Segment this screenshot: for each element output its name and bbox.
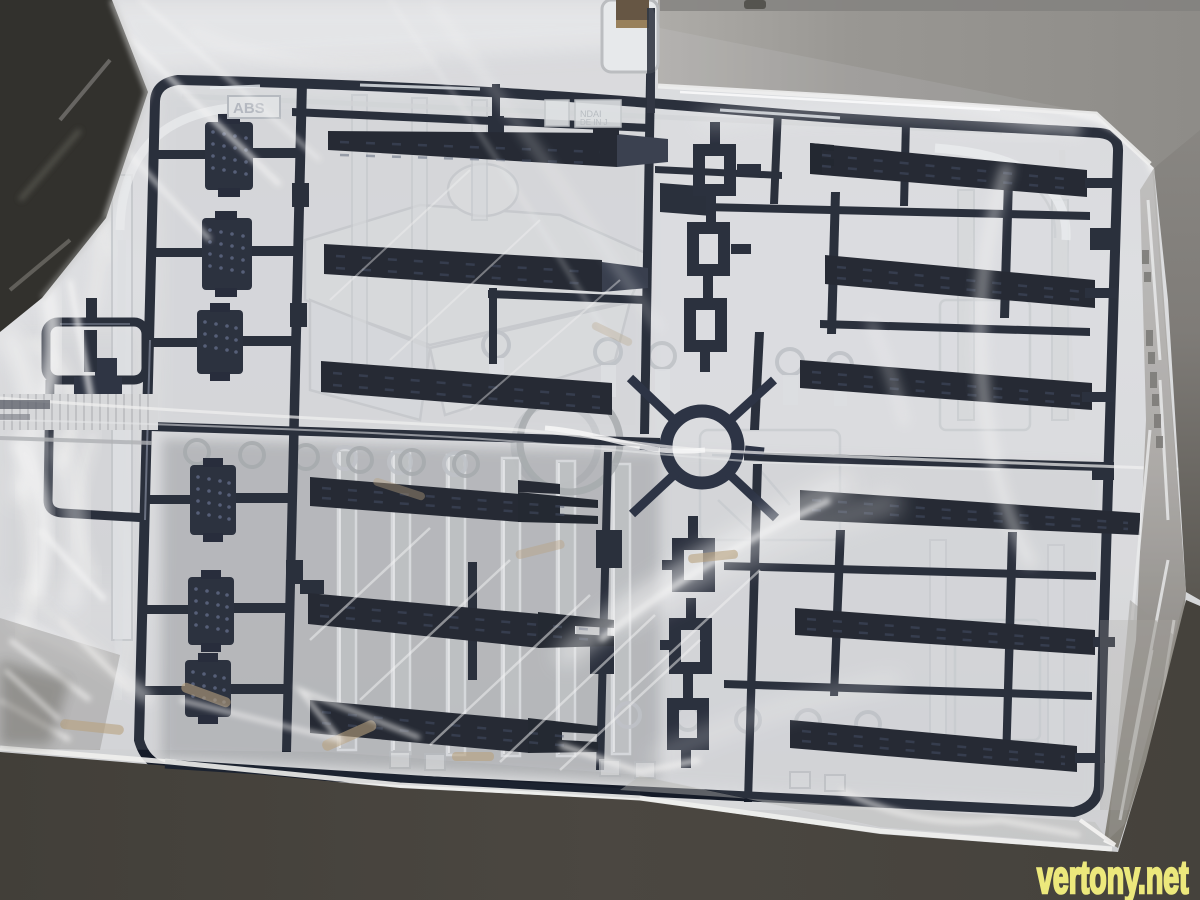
svg-text:vertony.net: vertony.net: [1037, 852, 1189, 900]
